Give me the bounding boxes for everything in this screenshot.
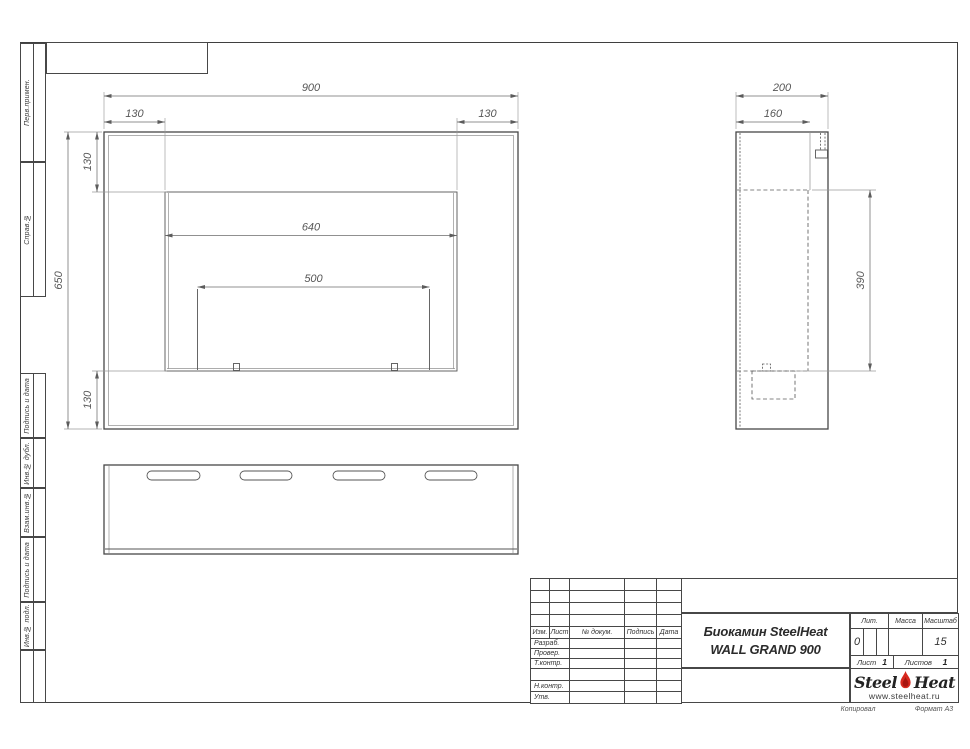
lit-value: 0	[851, 629, 864, 655]
drawing-sheet: Перв.примен. Справ.№ Подпись и дата Инв.…	[0, 0, 970, 749]
role-row-nkontr: Н.контр.	[531, 681, 681, 692]
logo-cell: Steel Heat www.steelheat.ru	[851, 669, 958, 703]
dim-opening-width: 640	[302, 222, 321, 234]
title-block-left-table: Изм. Лист № докум. Подпись Дата Разраб. …	[530, 578, 682, 704]
change-row	[531, 615, 681, 627]
steelheat-logo: Steel Heat	[854, 671, 955, 691]
dim-side-opening-height: 390	[855, 270, 867, 289]
role-row-tkontr: Т.контр.	[531, 659, 681, 669]
role-row-utv: Утв.	[531, 692, 681, 703]
dim-front-bottom-margin: 130	[82, 390, 94, 409]
change-row	[531, 603, 681, 615]
dim-front-top-margin: 130	[82, 152, 94, 171]
mass-value	[889, 629, 923, 655]
bottom-view	[104, 465, 518, 554]
sheets-total: 1	[943, 657, 948, 667]
header-podpis: Подпись	[625, 627, 657, 638]
role-row-empty	[531, 669, 681, 681]
lit-label: Лит.	[851, 614, 889, 628]
burner-tab-right	[392, 364, 398, 371]
copied-label: Копировал	[822, 706, 894, 713]
dim-front-right-margin: 130	[478, 108, 497, 120]
sheets-label: Листов	[905, 658, 932, 667]
title-block-right-section: Лит. Масса Масштаб 0 15 Лист 1 Листов 1 …	[850, 613, 959, 703]
burner-tab-left	[234, 364, 240, 371]
lit-value-row: 0 15	[851, 629, 958, 656]
change-header-row: Изм. Лист № докум. Подпись Дата	[531, 627, 681, 639]
logo-text-heat: Heat	[914, 675, 955, 691]
dim-front-left-margin: 130	[125, 108, 144, 120]
side-view	[736, 132, 828, 429]
flame-icon	[898, 671, 913, 690]
scale-value: 15	[923, 629, 958, 655]
header-data: Дата	[657, 627, 681, 638]
change-row	[531, 591, 681, 603]
vent-slot	[425, 471, 477, 480]
role-row-prover: Провер.	[531, 649, 681, 659]
vent-slot	[147, 471, 200, 480]
format-label: Формат А3	[903, 706, 965, 713]
logo-text-steel: Steel	[854, 675, 897, 691]
title-lower-empty-cell	[681, 668, 850, 703]
doc-title-line2: WALL GRAND 900	[710, 641, 820, 659]
vent-slot	[333, 471, 385, 480]
dimensions: 900 130 130 640 500 650 130 130 200 160 …	[53, 82, 876, 429]
doc-title-cell: Биокамин SteelHeat WALL GRAND 900	[681, 613, 850, 668]
header-list: Лист	[550, 627, 570, 638]
dim-front-overall-height: 650	[53, 270, 65, 289]
sheet-number: 1	[882, 657, 887, 667]
mass-label: Масса	[889, 614, 923, 628]
burner-side-hidden	[752, 371, 795, 399]
vent-slot	[240, 471, 292, 480]
sheet-label: Лист	[857, 658, 876, 667]
dim-front-overall-width: 900	[302, 82, 321, 94]
doc-designation-cell	[681, 578, 958, 613]
header-dokum: № докум.	[570, 627, 625, 638]
scale-label: Масштаб	[923, 614, 958, 628]
role-row-razrab: Разраб.	[531, 639, 681, 649]
dim-side-overall-depth: 200	[772, 82, 792, 94]
dim-side-inner-depth: 160	[764, 108, 783, 120]
logo-website: www.steelheat.ru	[869, 691, 940, 701]
lit-header-row: Лит. Масса Масштаб	[851, 614, 958, 629]
header-izm: Изм.	[531, 627, 550, 638]
change-row	[531, 579, 681, 591]
sheet-row: Лист 1 Листов 1	[851, 656, 958, 669]
dim-burner-width: 500	[304, 273, 323, 285]
doc-title-line1: Биокамин SteelHeat	[704, 623, 828, 641]
